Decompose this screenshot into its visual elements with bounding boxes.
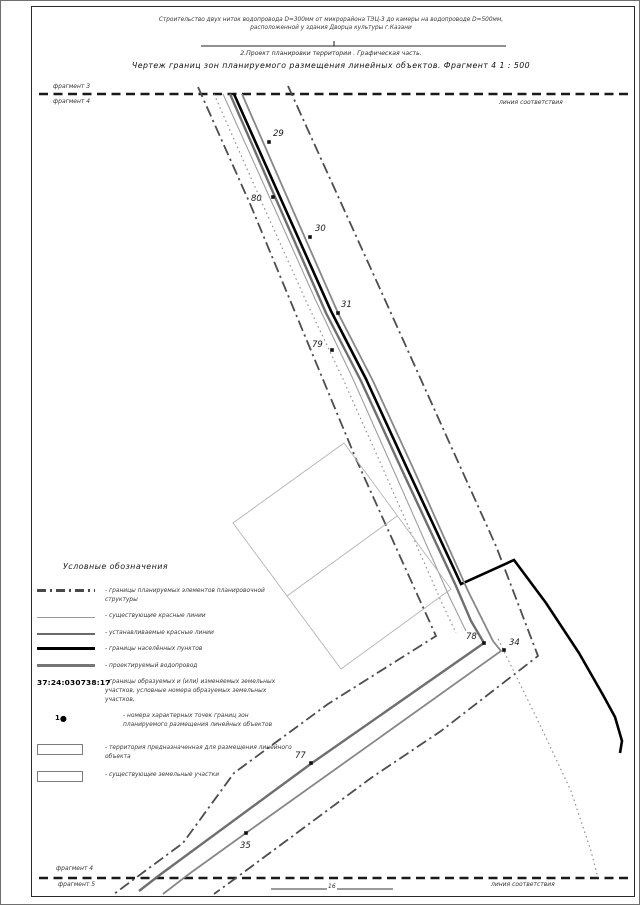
- survey-point-34: [502, 648, 506, 652]
- survey-point-77: [309, 761, 313, 765]
- survey-point-80: [271, 195, 275, 199]
- survey-point-label-35: 35: [240, 841, 251, 851]
- thick-black-line-swatch: [37, 647, 95, 650]
- point-dot-icon: ●: [60, 714, 67, 723]
- map-line-existing-boundary-dotted-2: [498, 639, 598, 878]
- project-title-line2: расположенной у здания Дворца культуры г…: [111, 25, 551, 33]
- drawing-sheet: 298030317978347735 Строительство двух ни…: [0, 0, 640, 905]
- map-line-existing-red-line-left: [223, 94, 466, 631]
- legend-item-label: - существующие земельные участки: [105, 771, 219, 780]
- drawing-title: Чертеж границ зон планируемого размещени…: [111, 61, 551, 72]
- point-number-example: 1●: [37, 714, 113, 722]
- survey-point-label-29: 29: [273, 129, 284, 139]
- legend-item-label: - границы населённых пунктов: [105, 645, 202, 654]
- scale-mark-label: 16: [328, 883, 336, 890]
- legend-item-planning-boundary: - границы планируемых элементов планиров…: [37, 587, 293, 604]
- legend-item-existing-parcels: - существующие земельные участки: [37, 769, 293, 782]
- survey-point-label-31: 31: [341, 300, 352, 310]
- fragment-label-bottom-above: фрагмент 4: [56, 865, 93, 872]
- legend-item-parcel-boundaries: 37:24:030738:17 - границы образуемых и (…: [37, 678, 293, 704]
- thick-gray-line-swatch: [37, 664, 95, 667]
- survey-point-label-34: 34: [509, 638, 520, 648]
- legend-item-projected-waterline: - проектируемый водопровод: [37, 662, 293, 671]
- survey-point-label-77: 77: [295, 751, 306, 761]
- fragment-label-top-above: фрагмент 3: [53, 83, 90, 90]
- cadastral-number: 37:24:030738:17: [37, 678, 95, 687]
- survey-point-label-79: 79: [312, 340, 323, 350]
- survey-point-label-30: 30: [315, 224, 326, 234]
- legend-item-established-red-lines: - устанавливаемые красные линии: [37, 629, 293, 638]
- survey-point-31: [336, 311, 340, 315]
- survey-point-79: [330, 348, 334, 352]
- section-title: 2.Проект планировки территории . Графиче…: [111, 50, 551, 58]
- medium-line-swatch: [37, 633, 95, 635]
- survey-point-label-80: 80: [251, 194, 262, 204]
- legend-item-point-numbers: 1● - номера характерных точек границ зон…: [37, 712, 293, 729]
- fragment-label-bottom-below: фрагмент 5: [58, 881, 95, 888]
- legend-item-label: - проектируемый водопровод: [105, 662, 197, 671]
- survey-point-29: [267, 140, 271, 144]
- correspondence-line-label-top: линия соответствия: [499, 99, 563, 106]
- survey-point-label-78: 78: [466, 632, 477, 642]
- legend-header: Условные обозначения: [63, 562, 293, 571]
- legend-item-label: - границы образуемых и (или) изменяемых …: [105, 678, 293, 704]
- legend-item-linear-object-territory: - территория предназначенная для размеще…: [37, 742, 293, 761]
- survey-point-30: [308, 235, 312, 239]
- legend-item-label: - существующие красные линии: [105, 612, 206, 621]
- legend-item-label: - устанавливаемые красные линии: [105, 629, 214, 638]
- legend-item-label: - номера характерных точек границ зон пл…: [123, 712, 293, 729]
- survey-point-78: [482, 641, 486, 645]
- map-line-parcel-divider: [287, 516, 397, 596]
- legend-item-settlement-boundary: - границы населённых пунктов: [37, 645, 293, 654]
- legend: Условные обозначения - границы планируем…: [37, 562, 293, 790]
- thin-line-swatch: [37, 617, 95, 618]
- project-title-line1: Строительство двух ниток водопровода D=3…: [111, 17, 551, 25]
- white-rect-swatch: [37, 771, 83, 782]
- legend-item-existing-red-lines: - существующие красные линии: [37, 612, 293, 621]
- survey-point-35: [244, 831, 248, 835]
- legend-item-label: - территория предназначенная для размеще…: [105, 744, 293, 761]
- fragment-label-top-below: фрагмент 4: [53, 98, 90, 105]
- correspondence-line-label-bottom: линия соответствия: [491, 881, 555, 888]
- legend-item-label: - границы планируемых элементов планиров…: [105, 587, 293, 604]
- map-line-existing-boundary-dotted-1: [214, 94, 456, 633]
- dashdot-line-swatch: [37, 589, 95, 592]
- white-rect-swatch: [37, 744, 83, 755]
